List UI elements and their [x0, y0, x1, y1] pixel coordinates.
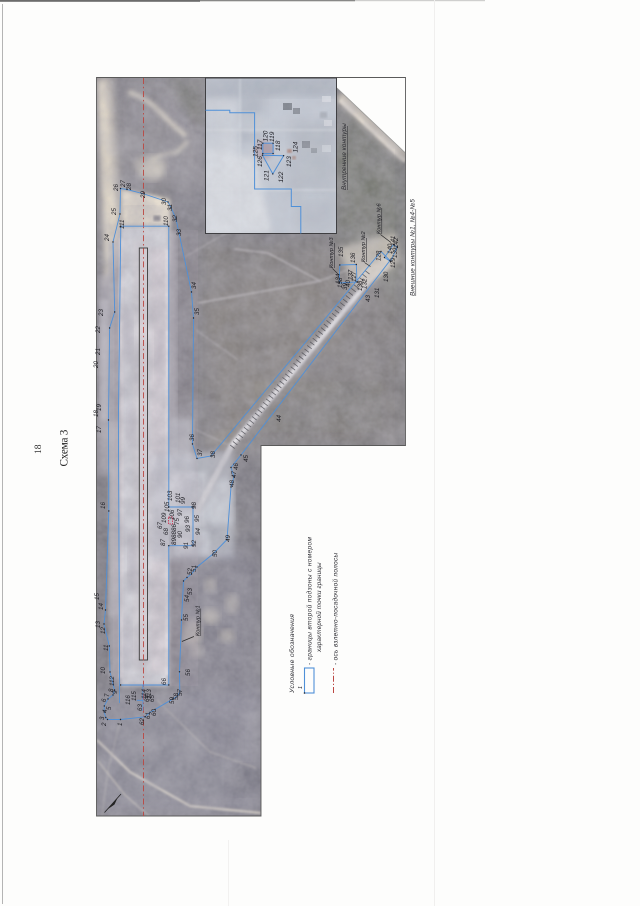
svg-text:1: 1	[117, 723, 124, 726]
svg-text:5: 5	[106, 706, 113, 710]
svg-text:25: 25	[111, 208, 118, 216]
svg-text:125: 125	[253, 146, 260, 157]
svg-text:22: 22	[95, 326, 102, 334]
svg-text:50: 50	[212, 550, 219, 557]
svg-text:34: 34	[191, 282, 198, 289]
svg-text:1: 1	[298, 686, 304, 689]
svg-text:18: 18	[93, 410, 100, 417]
svg-text:110: 110	[163, 216, 170, 226]
svg-text:12: 12	[100, 627, 107, 634]
svg-text:91: 91	[183, 542, 190, 549]
svg-text:118: 118	[275, 140, 282, 151]
svg-text:112: 112	[109, 676, 116, 686]
svg-text:60: 60	[151, 709, 158, 716]
svg-text:93: 93	[185, 525, 192, 532]
svg-text:4: 4	[102, 709, 109, 713]
svg-text:8: 8	[108, 688, 115, 692]
svg-text:90: 90	[177, 531, 184, 538]
svg-text:98: 98	[191, 502, 198, 509]
svg-text:119: 119	[269, 131, 276, 142]
svg-text:97: 97	[177, 509, 184, 516]
svg-text:56: 56	[185, 669, 192, 676]
svg-text:139: 139	[392, 247, 399, 258]
svg-text:95: 95	[194, 515, 201, 522]
svg-text:46: 46	[233, 463, 240, 470]
svg-text:15: 15	[94, 593, 101, 600]
svg-text:20: 20	[93, 361, 100, 369]
svg-text:128: 128	[376, 250, 383, 261]
svg-text:66: 66	[161, 678, 168, 685]
svg-text:28: 28	[126, 183, 133, 191]
svg-text:Схема 3: Схема 3	[59, 429, 71, 466]
svg-text:Внешние контуры №1, №4-№5: Внешние контуры №1, №4-№5	[410, 199, 417, 296]
svg-text:2: 2	[101, 722, 108, 727]
svg-text:129: 129	[390, 257, 397, 268]
svg-text:13: 13	[95, 621, 102, 628]
svg-text:121: 121	[264, 170, 271, 181]
svg-text:137: 137	[348, 269, 355, 280]
svg-text:111: 111	[119, 220, 126, 229]
svg-text:21: 21	[95, 348, 102, 356]
svg-text:131: 131	[374, 288, 381, 298]
svg-text:59: 59	[169, 697, 176, 704]
svg-text:19: 19	[96, 404, 103, 411]
svg-text:44: 44	[276, 415, 283, 422]
svg-text:29: 29	[140, 191, 147, 199]
svg-text:36: 36	[189, 434, 196, 441]
svg-text:10: 10	[100, 667, 107, 674]
svg-text:52: 52	[187, 568, 194, 575]
svg-text:24: 24	[104, 234, 111, 242]
svg-text:35: 35	[194, 308, 201, 315]
svg-text:16: 16	[100, 502, 107, 509]
svg-text:48: 48	[229, 480, 236, 487]
svg-text:32: 32	[172, 215, 179, 222]
svg-text:49: 49	[225, 535, 232, 542]
svg-text:38: 38	[210, 451, 217, 458]
svg-text:26: 26	[113, 184, 120, 192]
svg-text:68: 68	[163, 528, 170, 535]
svg-text:122: 122	[278, 171, 285, 182]
svg-text:Условные обозначения: Условные обозначения	[288, 614, 296, 694]
svg-text:142: 142	[393, 237, 400, 248]
svg-text:6: 6	[101, 698, 108, 702]
svg-text:96: 96	[184, 516, 191, 523]
svg-text:45: 45	[243, 455, 250, 462]
svg-text:103: 103	[167, 490, 174, 501]
svg-text:23: 23	[98, 309, 105, 317]
svg-text:33: 33	[176, 229, 183, 236]
svg-text:- границы второй подзоны с ном: - границы второй подзоны с номером	[306, 537, 314, 665]
svg-text:115: 115	[131, 691, 138, 701]
svg-text:123: 123	[286, 156, 293, 167]
svg-text:133: 133	[357, 280, 364, 291]
svg-text:11: 11	[103, 645, 110, 651]
svg-text:130: 130	[383, 271, 390, 282]
svg-text:53: 53	[187, 588, 194, 595]
svg-text:- ось взлетно-посадочной полос: - ось взлетно-посадочной полосы	[332, 552, 340, 665]
svg-text:87: 87	[160, 539, 167, 546]
svg-text:126: 126	[257, 156, 264, 167]
svg-text:99: 99	[180, 497, 187, 504]
svg-text:43: 43	[365, 295, 372, 302]
svg-text:55: 55	[183, 614, 190, 621]
svg-text:Внутренние контуры: Внутренние контуры	[341, 123, 348, 190]
svg-text:47: 47	[231, 471, 238, 478]
svg-text:18: 18	[34, 444, 44, 454]
svg-text:94: 94	[195, 528, 202, 535]
svg-text:37: 37	[197, 449, 204, 456]
svg-text:135: 135	[338, 246, 345, 257]
svg-text:характерной точки границы: характерной точки границы	[316, 562, 323, 653]
svg-text:31: 31	[167, 204, 174, 211]
svg-text:30: 30	[161, 198, 168, 205]
svg-text:17: 17	[96, 426, 103, 433]
svg-text:7: 7	[104, 693, 111, 697]
svg-text:109: 109	[161, 512, 168, 523]
svg-text:63: 63	[137, 704, 144, 711]
svg-text:136: 136	[350, 252, 357, 263]
svg-text:14: 14	[98, 603, 105, 610]
svg-text:54: 54	[184, 595, 191, 602]
svg-text:92: 92	[191, 540, 198, 547]
svg-text:113: 113	[146, 689, 153, 699]
svg-text:106: 106	[169, 509, 176, 520]
svg-text:124: 124	[293, 141, 300, 152]
svg-text:3: 3	[99, 716, 106, 720]
